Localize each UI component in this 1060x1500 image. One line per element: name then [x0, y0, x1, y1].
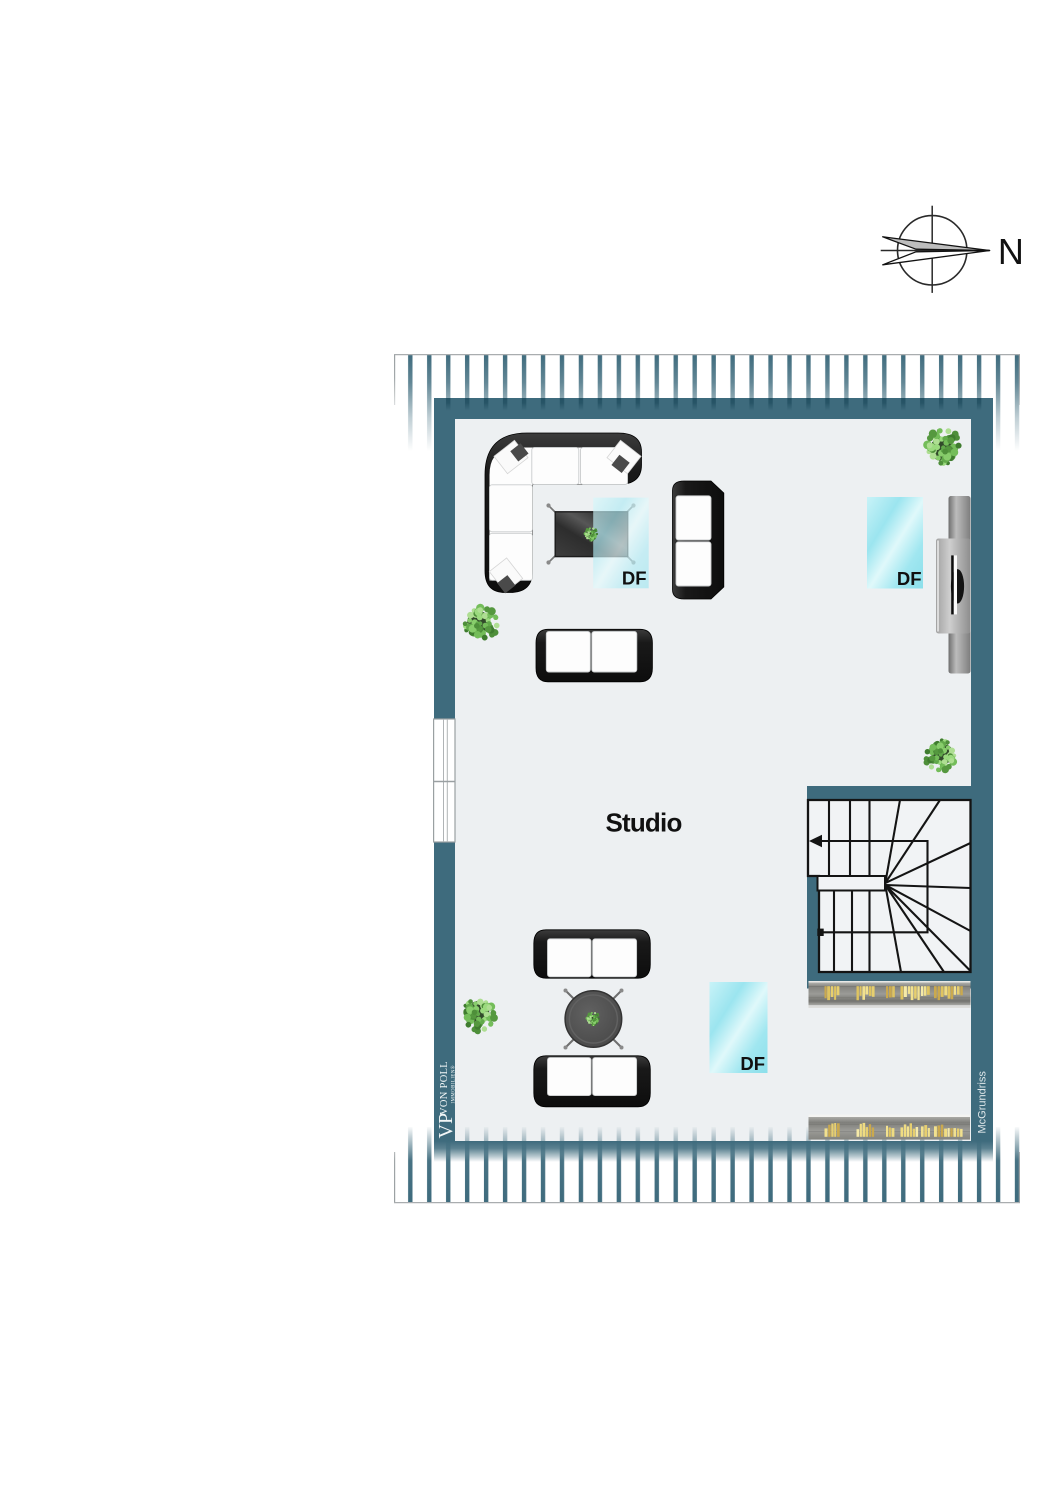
svg-text:N: N	[998, 231, 1024, 272]
svg-text:DF: DF	[622, 568, 647, 589]
svg-text:DF: DF	[740, 1053, 765, 1074]
svg-text:VON POLL: VON POLL	[439, 1061, 450, 1115]
svg-text:DF: DF	[897, 568, 922, 589]
svg-text:VP: VP	[435, 1113, 457, 1139]
svg-text:McGrundriss: McGrundriss	[977, 1071, 989, 1134]
svg-text:IMMOBILIEN®: IMMOBILIEN®	[450, 1065, 456, 1103]
svg-text:Studio: Studio	[605, 808, 681, 838]
